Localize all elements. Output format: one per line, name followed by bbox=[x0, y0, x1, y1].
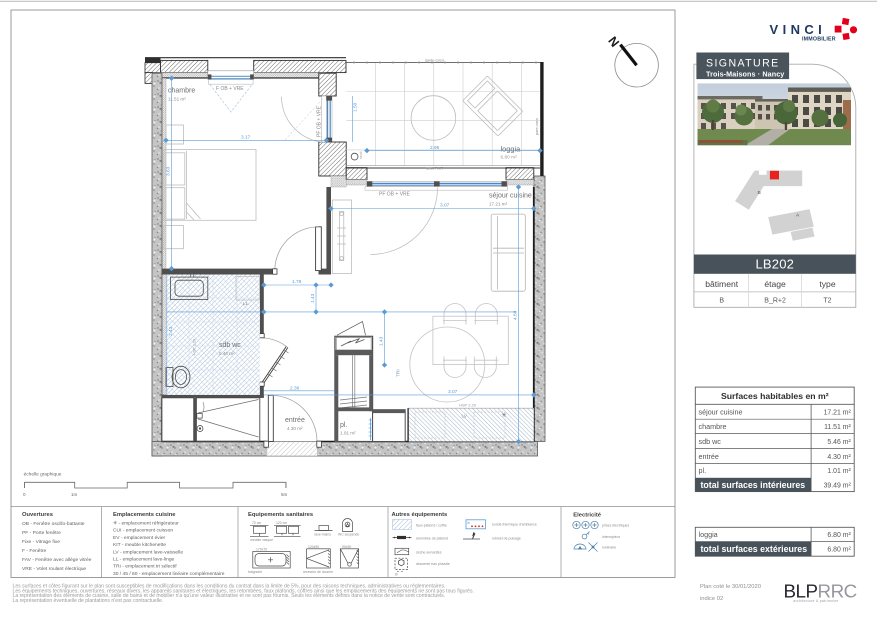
svg-text:Electricité: Electricité bbox=[573, 513, 601, 519]
svg-text:1.50: 1.50 bbox=[353, 102, 359, 112]
svg-text:OB - Fenêtre oscillo-battante: OB - Fenêtre oscillo-battante bbox=[22, 521, 85, 527]
svg-text:retombée de plafond: retombée de plafond bbox=[416, 536, 448, 540]
svg-text:receveur de douche: receveur de douche bbox=[303, 570, 333, 574]
svg-text:luminaire: luminaire bbox=[602, 546, 616, 550]
svg-text:pl.: pl. bbox=[340, 422, 347, 429]
svg-text:120x90: 120x90 bbox=[308, 545, 319, 549]
svg-text:Plan coté le 30/01/2020: Plan coté le 30/01/2020 bbox=[700, 584, 761, 590]
svg-text:Ouvertures: Ouvertures bbox=[22, 512, 53, 518]
svg-text:2.36: 2.36 bbox=[290, 386, 300, 392]
svg-text:sonde thermique d'ambiance: sonde thermique d'ambiance bbox=[492, 523, 537, 527]
svg-text:3.07: 3.07 bbox=[440, 203, 450, 209]
svg-text:11.51 m²: 11.51 m² bbox=[824, 424, 851, 431]
svg-text:PF - Porte fenêtre: PF - Porte fenêtre bbox=[22, 530, 61, 536]
svg-text:robinet de puisage: robinet de puisage bbox=[492, 536, 521, 540]
svg-text:120 cm: 120 cm bbox=[276, 521, 287, 525]
svg-text:1.78: 1.78 bbox=[292, 279, 302, 285]
svg-text:Trois-Maisons · Nancy: Trois-Maisons · Nancy bbox=[706, 69, 784, 78]
svg-text:interrupteur: interrupteur bbox=[602, 535, 621, 539]
svg-text:EV - emplacement évier: EV - emplacement évier bbox=[113, 535, 166, 541]
svg-text:6.80 m²: 6.80 m² bbox=[827, 532, 851, 539]
svg-text:seuil: seuil bbox=[359, 151, 363, 159]
svg-text:TRI: TRI bbox=[396, 369, 402, 377]
svg-text:B: B bbox=[758, 190, 761, 196]
svg-text:1.43: 1.43 bbox=[310, 293, 316, 303]
svg-text:2.95: 2.95 bbox=[430, 145, 440, 151]
svg-text:CUI - emplacement cuisson: CUI - emplacement cuisson bbox=[113, 528, 173, 534]
svg-text:4.30 m²: 4.30 m² bbox=[287, 426, 303, 431]
svg-text:chambre: chambre bbox=[168, 88, 195, 95]
svg-text:39.49 m²: 39.49 m² bbox=[824, 482, 852, 489]
svg-text:type: type bbox=[819, 279, 835, 289]
svg-text:PF OB + VRE: PF OB + VRE bbox=[316, 105, 322, 137]
svg-text:séjour cuisine: séjour cuisine bbox=[489, 193, 532, 200]
svg-text:th: th bbox=[468, 521, 471, 525]
svg-text:1.01 m²: 1.01 m² bbox=[827, 468, 851, 475]
svg-text:1.01 m²: 1.01 m² bbox=[340, 431, 356, 436]
svg-text:LL: LL bbox=[243, 301, 249, 307]
svg-text:Emplacements cuisine: Emplacements cuisine bbox=[113, 512, 176, 518]
svg-text:30 / 45 / 60 - emplacement lin: 30 / 45 / 60 - emplacement linéaire comp… bbox=[113, 571, 225, 577]
svg-text:70 cm: 70 cm bbox=[252, 521, 261, 525]
svg-text:6.80 m²: 6.80 m² bbox=[827, 547, 851, 554]
svg-text:✳: ✳ bbox=[502, 412, 507, 419]
svg-text:5m: 5m bbox=[281, 492, 288, 497]
svg-text:total surfaces extérieures: total surfaces extérieures bbox=[701, 544, 808, 554]
svg-text:sdb wc: sdb wc bbox=[699, 437, 722, 446]
svg-text:faux-plafond / coffre: faux-plafond / coffre bbox=[416, 524, 447, 528]
svg-text:indice 02: indice 02 bbox=[700, 596, 723, 602]
svg-text:WC suspendu: WC suspendu bbox=[338, 532, 359, 536]
svg-text:descente eau pluviale: descente eau pluviale bbox=[416, 562, 450, 566]
svg-text:T2: T2 bbox=[823, 298, 831, 305]
svg-text:entrée: entrée bbox=[699, 452, 719, 461]
svg-text:VRE - Volet roulant électrique: VRE - Volet roulant électrique bbox=[22, 566, 86, 572]
svg-text:garde-corps: garde-corps bbox=[425, 59, 444, 63]
svg-text:KIT - meuble kitchenette: KIT - meuble kitchenette bbox=[113, 542, 166, 548]
svg-text:architecture & patrimoine: architecture & patrimoine bbox=[793, 599, 838, 603]
svg-text:TRI - emplacement tri sélectif: TRI - emplacement tri sélectif bbox=[113, 564, 177, 570]
svg-text:17.21 m²: 17.21 m² bbox=[489, 202, 508, 207]
svg-text:SIGNATURE: SIGNATURE bbox=[706, 58, 780, 70]
svg-text:IMMOBILIER: IMMOBILIER bbox=[802, 37, 836, 43]
svg-text:17.21 m²: 17.21 m² bbox=[824, 410, 852, 417]
svg-text:3.17: 3.17 bbox=[241, 135, 251, 141]
svg-text:3.63: 3.63 bbox=[166, 166, 172, 176]
svg-text:Equipements sanitaires: Equipements sanitaires bbox=[248, 512, 313, 518]
svg-text:entrée: entrée bbox=[285, 417, 305, 424]
svg-text:B: B bbox=[719, 298, 724, 305]
svg-text:90x90: 90x90 bbox=[342, 545, 351, 549]
svg-text:0: 0 bbox=[23, 492, 26, 497]
svg-text:170x70: 170x70 bbox=[256, 547, 267, 551]
svg-text:bâtiment: bâtiment bbox=[705, 279, 739, 289]
svg-text:loggia: loggia bbox=[501, 145, 522, 154]
svg-text:étage: étage bbox=[764, 279, 786, 289]
svg-text:LB202: LB202 bbox=[756, 257, 795, 272]
svg-text:✳ - emplacement réfrigérateur: ✳ - emplacement réfrigérateur bbox=[113, 521, 179, 527]
svg-text:LV - emplacement lave-vaissell: LV - emplacement lave-vaisselle bbox=[113, 549, 183, 555]
svg-text:chambre: chambre bbox=[699, 422, 727, 431]
svg-text:loggia: loggia bbox=[699, 530, 718, 539]
svg-text:4.30 m²: 4.30 m² bbox=[827, 454, 851, 461]
svg-text:pl.: pl. bbox=[699, 466, 707, 475]
svg-text:PF OB + VRE: PF OB + VRE bbox=[379, 192, 411, 198]
svg-text:HSP 2.20: HSP 2.20 bbox=[459, 403, 477, 408]
svg-text:LL - emplacement lave-linge: LL - emplacement lave-linge bbox=[113, 557, 175, 563]
svg-text:prises électriques: prises électriques bbox=[602, 524, 629, 528]
svg-text:seuil PMR: seuil PMR bbox=[426, 167, 444, 171]
svg-text:échelle graphique: échelle graphique bbox=[24, 472, 62, 478]
svg-text:sdb wc: sdb wc bbox=[219, 342, 241, 349]
svg-text:5.46 m²: 5.46 m² bbox=[219, 351, 235, 356]
svg-text:HSP 2.26: HSP 2.26 bbox=[193, 339, 197, 355]
svg-text:5.46 m²: 5.46 m² bbox=[827, 439, 851, 446]
svg-text:6.80 m²: 6.80 m² bbox=[501, 155, 518, 161]
svg-text:1.43: 1.43 bbox=[379, 336, 385, 346]
svg-text:total surfaces intérieures: total surfaces intérieures bbox=[701, 480, 806, 490]
svg-text:1m: 1m bbox=[71, 492, 78, 497]
svg-text:séjour cuisine: séjour cuisine bbox=[699, 408, 743, 417]
svg-text:B_R+2: B_R+2 bbox=[764, 298, 786, 305]
svg-text:FAV - Fenêtre avec allège vitr: FAV - Fenêtre avec allège vitrée bbox=[22, 557, 92, 563]
svg-text:F OB + VRE: F OB + VRE bbox=[216, 86, 244, 92]
svg-text:baignoire: baignoire bbox=[248, 570, 262, 574]
svg-text:3.07: 3.07 bbox=[448, 389, 458, 395]
svg-text:Surfaces habitables en m²: Surfaces habitables en m² bbox=[721, 391, 829, 401]
svg-text:2.43: 2.43 bbox=[168, 326, 174, 336]
svg-text:F - Fenêtre: F - Fenêtre bbox=[22, 548, 46, 554]
svg-text:11.51 m²: 11.51 m² bbox=[168, 97, 186, 102]
svg-text:La représentation éventuelle d: La représentation éventuelle de plantati… bbox=[13, 598, 164, 604]
svg-text:Ø: Ø bbox=[395, 573, 398, 577]
svg-text:meuble vasque: meuble vasque bbox=[250, 538, 273, 542]
svg-text:sèche-serviettes: sèche-serviettes bbox=[416, 550, 442, 554]
svg-text:Autres équipements: Autres équipements bbox=[392, 512, 448, 518]
svg-text:VINCI: VINCI bbox=[770, 22, 827, 37]
svg-text:lave-mains: lave-mains bbox=[315, 532, 332, 536]
svg-text:Fixe - Vitrage fixe: Fixe - Vitrage fixe bbox=[22, 539, 60, 545]
